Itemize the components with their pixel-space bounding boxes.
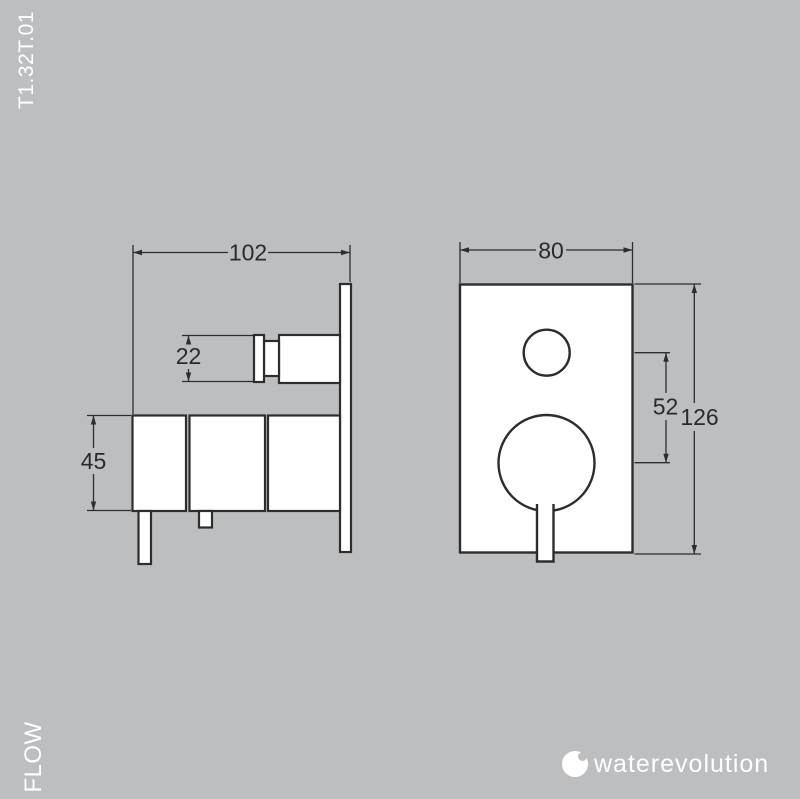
front-lever-rod	[537, 504, 554, 562]
side-wall-plate	[340, 284, 351, 552]
side-body-block-2	[190, 416, 266, 512]
dim-value-side-depth: 102	[229, 240, 267, 266]
brand-name: waterevolution	[594, 752, 769, 777]
side-outlet-stub	[199, 511, 212, 528]
side-body-block-3	[268, 416, 340, 512]
dim-value-body-height: 45	[81, 448, 107, 474]
dim-side-depth	[133, 245, 350, 414]
side-knob-body	[279, 335, 340, 383]
side-knob-cap	[254, 335, 264, 382]
technical-drawing: 102 22 45 80 52 126	[0, 0, 800, 799]
product-drawing-sheet: T1.32T.01 FLOW	[0, 0, 800, 799]
side-outlet-pipe	[139, 511, 152, 564]
waterevolution-drop-icon	[562, 751, 588, 777]
front-knob-circle	[524, 330, 570, 376]
dim-value-plate-height: 126	[680, 404, 718, 430]
dim-value-handle-centers: 52	[653, 394, 679, 420]
brand-logo: waterevolution	[562, 751, 769, 777]
side-view	[133, 284, 352, 564]
side-body-block-1	[133, 416, 187, 512]
front-view	[460, 285, 633, 562]
dim-value-front-width: 80	[538, 238, 564, 264]
front-lever-base-circle	[499, 415, 595, 511]
dim-value-knob-diameter: 22	[176, 343, 202, 369]
side-knob-stem	[264, 341, 279, 376]
